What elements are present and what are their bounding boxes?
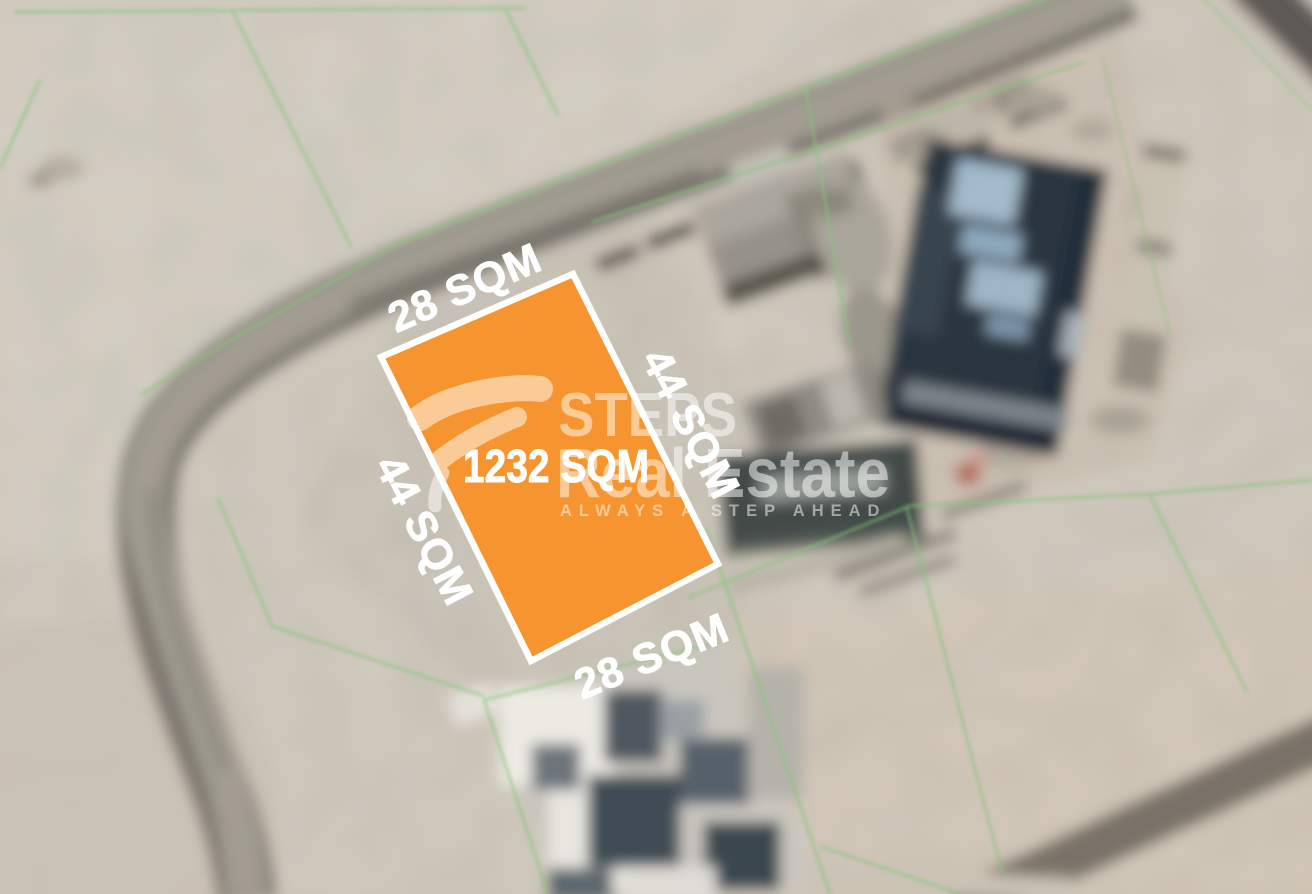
svg-text:1232 SQM: 1232 SQM	[463, 440, 649, 492]
svg-text:ALWAYS A STEP AHEAD: ALWAYS A STEP AHEAD	[560, 502, 886, 520]
